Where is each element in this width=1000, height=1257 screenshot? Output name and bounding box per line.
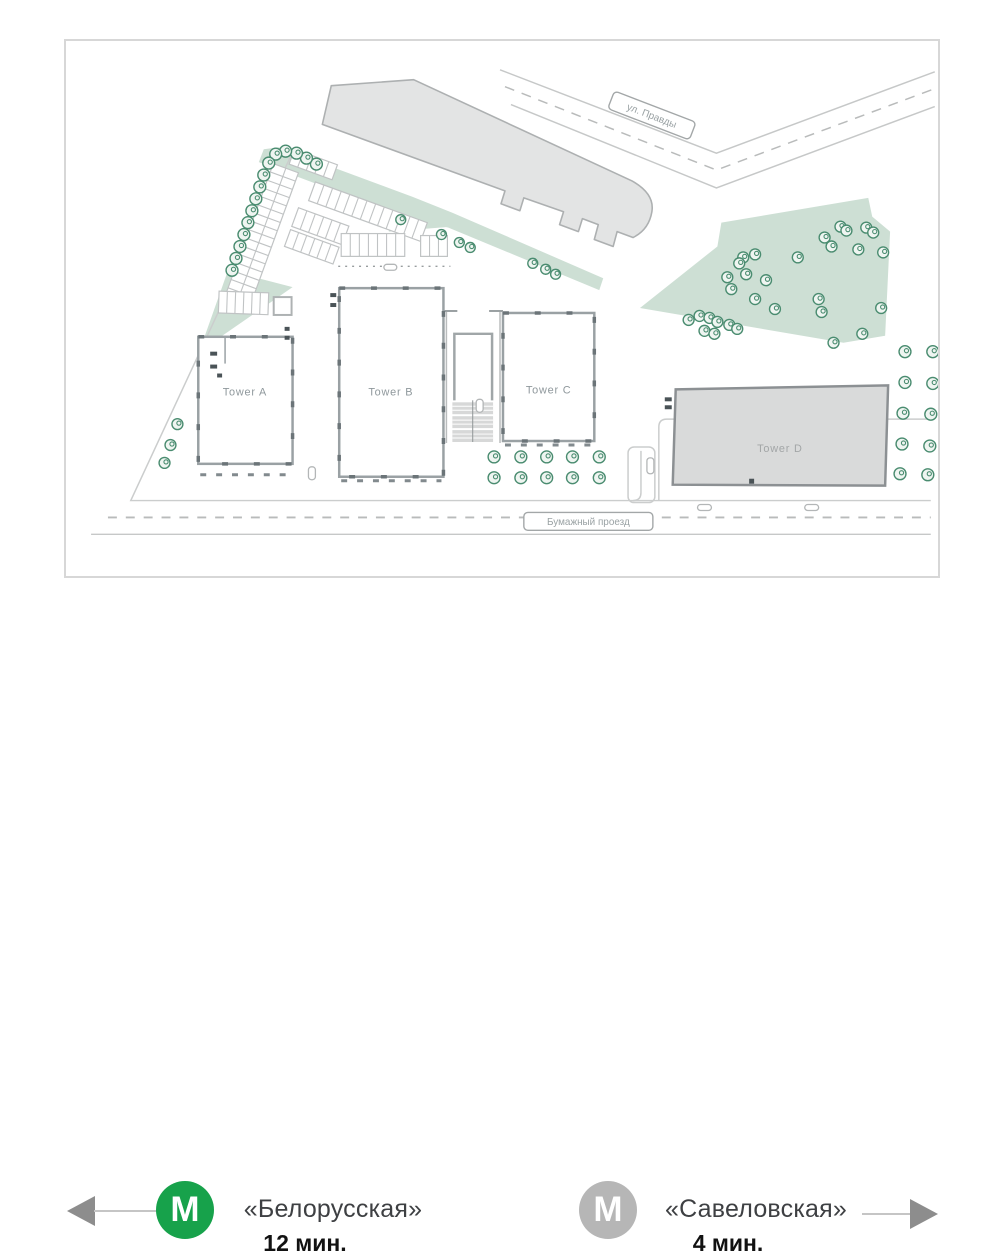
tower-connector [443,310,503,443]
metro-legend: M «Белорусская» 12 мин. M «Савеловская» … [0,578,1000,750]
tower-c-label: Tower C [526,384,572,396]
tower-d-label: Tower D [757,443,803,455]
tower-a-label: Tower A [223,386,267,398]
tree-group-tower-d-side [894,346,938,481]
tower-d-bottom-mark [749,479,754,484]
tower-d [665,385,888,485]
road-mark [647,458,654,474]
street-top-edge-upper [500,70,935,153]
station-belorusskaya: «Белорусская» 12 мин. [224,1195,442,1257]
parking-row-7 [218,291,268,315]
tower-c-outline [503,313,594,441]
tower-b-outline [339,288,443,477]
arrow-right-icon [910,1199,938,1229]
station-time: 4 мин. [618,1230,838,1257]
plot-abc-corner [633,451,641,501]
stairs [452,400,493,442]
road-mark [698,505,712,511]
station-savelovskaya: «Савеловская» 4 мин. [646,1195,866,1257]
street-bottom-label-text: Бумажный проезд [547,517,630,528]
tower-a-outline [198,337,292,464]
tower-b-label: Tower B [368,386,413,398]
street-bottom-label: Бумажный проезд [524,512,653,530]
site-plan-map: ул. Правды Бумажный проезд Tower A Tower… [64,39,940,578]
utility-box [274,297,292,315]
road-mark [805,505,819,511]
arrow-left-icon [67,1196,95,1226]
tower-d-entry-mark-1 [665,397,672,401]
metro-m-icon: M [593,1190,622,1229]
tower-d-entry-mark-2 [665,405,672,409]
street-top-label: ул. Правды [608,91,696,140]
station-name: «Белорусская» [224,1195,442,1224]
page: { "site_plan": { "street_top": {"label":… [0,0,1000,750]
park-area [640,198,890,343]
station-name: «Савеловская» [646,1195,866,1224]
arrow-right-line [862,1213,910,1215]
site-plan-svg: ул. Правды Бумажный проезд Tower A Tower… [66,41,938,576]
street-bottom [91,517,931,534]
road-mark [308,467,315,480]
road-mark [476,399,483,412]
tree-group-tower-a-side [159,419,183,469]
connector-atrium [454,334,492,401]
station-time: 12 мин. [196,1230,414,1257]
tower-d-building [673,385,888,485]
parking-row-5 [341,234,405,257]
metro-m-icon: M [170,1190,199,1229]
tree-group-court-grid [488,451,605,484]
road-mark [384,264,397,270]
